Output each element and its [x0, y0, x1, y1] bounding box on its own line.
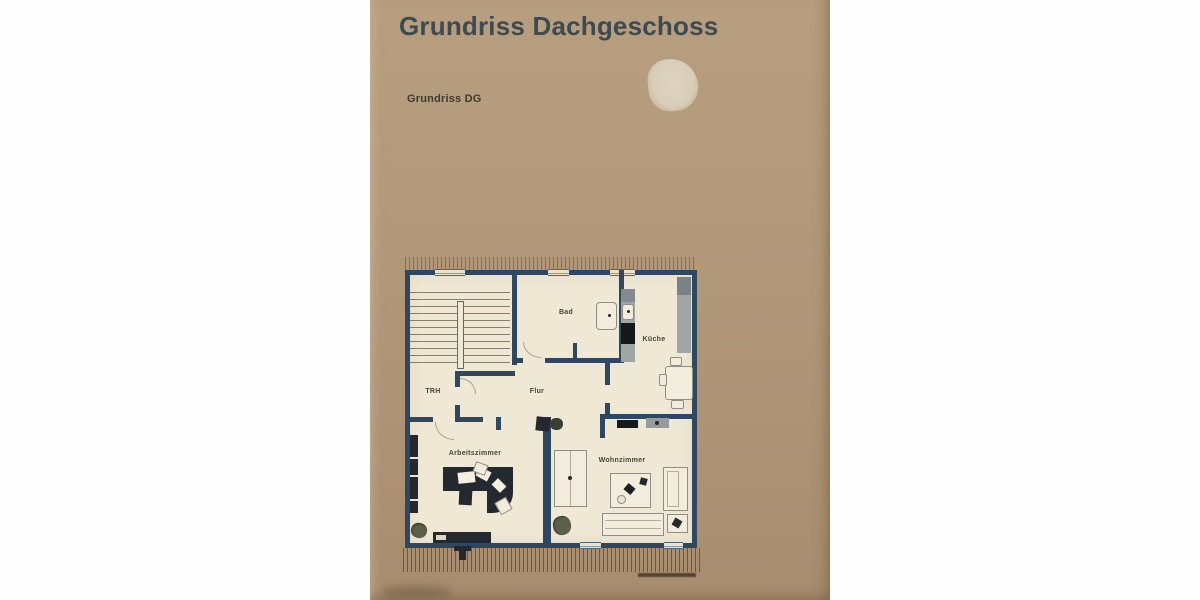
flur-wardrobe: [535, 416, 550, 431]
shelf-dot: [655, 421, 659, 425]
sofa: [602, 513, 664, 536]
room-label-trh: TRH: [418, 388, 448, 395]
wall-arbeitszimmer-wohnzimmer: [543, 417, 551, 548]
kitchen-counter-right: [677, 295, 691, 353]
kitchen-fridge: [621, 289, 635, 302]
tv-board: [617, 420, 638, 428]
kitchen-cabinet-right: [677, 277, 691, 295]
sofa-line-2: [605, 528, 661, 529]
roof-hatch-bottom: [403, 548, 700, 572]
window-bottom-wohnzimmer-2: [664, 542, 683, 549]
wall-bad-bottom-left: [512, 358, 523, 363]
bathtub-drain: [608, 314, 611, 317]
wall-wohnzimmer-entry-stub: [600, 414, 605, 438]
wall-arbeitszimmer-top-right: [455, 417, 483, 422]
page-bottom-shadow: [382, 586, 452, 598]
room-label-arbeitszimmer: Arbeitszimmer: [434, 450, 516, 457]
room-label-flur: Flur: [520, 388, 554, 395]
dining-table: [665, 366, 693, 400]
bookshelf-1: [410, 435, 418, 457]
dining-chair-bottom: [671, 400, 684, 409]
staircase-rail: [457, 301, 464, 369]
wall-trh-bottom: [455, 371, 515, 376]
wardrobe-handle: [568, 476, 572, 480]
sofa-line-1: [605, 520, 661, 521]
wall-outer-bottom: [405, 543, 697, 548]
table-plate: [617, 495, 626, 504]
wall-arbeitszimmer-top-stub: [496, 417, 501, 430]
room-label-kueche: Küche: [635, 336, 673, 343]
wall-arbeitszimmer-top-left: [405, 417, 433, 422]
bathtub: [596, 302, 617, 330]
plant-wohnzimmer-top: [550, 418, 563, 430]
window-top-bad: [548, 269, 569, 276]
wall-trh-bad: [512, 270, 517, 365]
bad-partition: [573, 343, 577, 360]
room-label-wohnzimmer: Wohnzimmer: [580, 457, 664, 464]
floorplan-drawing: TRH Bad Küche Flur Arbeitszimmer Wohnzim…: [403, 257, 699, 579]
office-chair-dark: [459, 490, 473, 506]
window-bottom-wohnzimmer-1: [580, 542, 601, 549]
bookshelf-2: [410, 459, 418, 475]
desk-paper-1: [457, 471, 475, 484]
dining-chair-top: [670, 357, 682, 366]
room-label-bad: Bad: [549, 309, 583, 316]
whiteout-smudge: [646, 57, 700, 113]
wall-flur-kueche-upper: [605, 363, 610, 385]
page-title: Grundriss Dachgeschoss: [399, 11, 819, 42]
bookshelf-4: [410, 501, 418, 513]
dining-chair-left: [659, 374, 667, 386]
balcony-door-stem: [459, 548, 466, 560]
document-page: Grundriss Dachgeschoss Grundriss DG: [370, 0, 830, 600]
wall-outer-right: [692, 270, 697, 548]
kitchen-stove: [621, 323, 635, 344]
wall-bad-bottom: [545, 358, 624, 363]
plan-caption: Grundriss DG: [407, 93, 482, 105]
credit-text-illegible: [638, 573, 696, 577]
kitchen-sink-drain: [627, 310, 630, 313]
sideboard-detail: [436, 535, 446, 540]
window-top-trh: [435, 269, 465, 276]
bookshelf-3: [410, 477, 418, 499]
armchair-cushion: [667, 471, 679, 507]
